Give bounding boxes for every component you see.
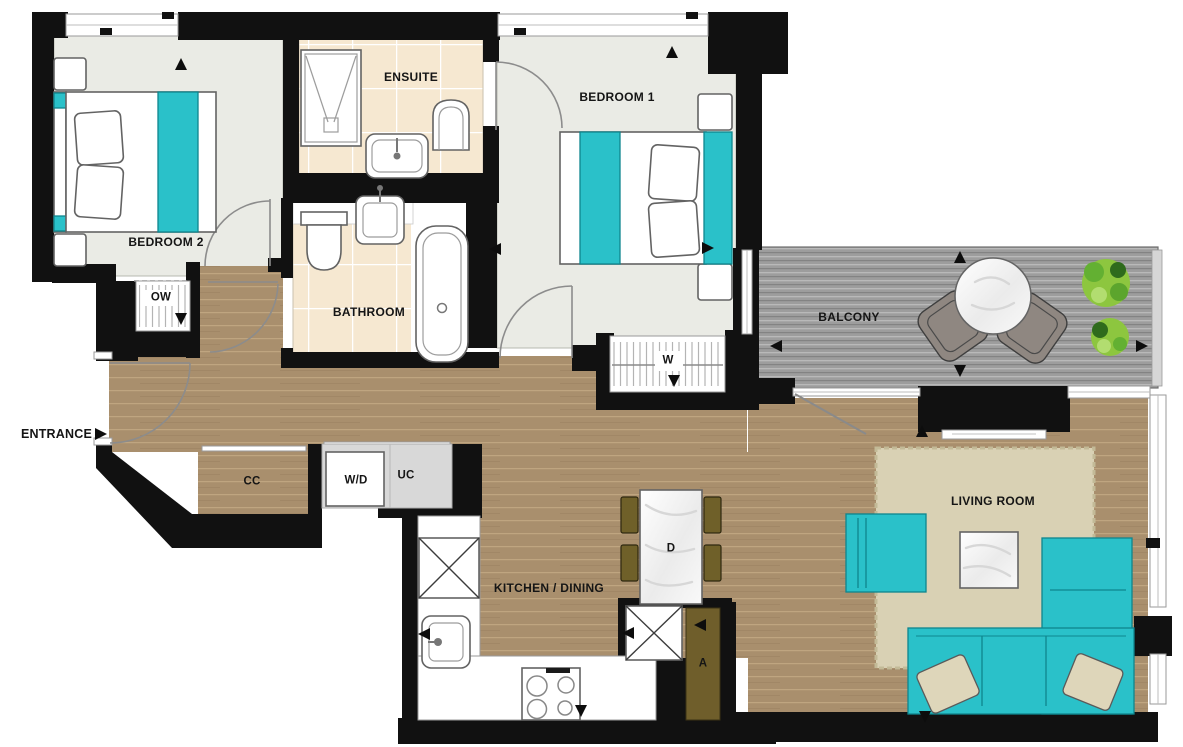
kitchen-tall-unit xyxy=(419,538,479,598)
window xyxy=(498,12,708,36)
hob xyxy=(522,668,580,720)
headboard xyxy=(704,132,732,264)
shower xyxy=(301,50,361,146)
pillow xyxy=(648,144,700,201)
window xyxy=(66,12,178,36)
nightstand xyxy=(698,264,732,300)
living-room-label: LIVING ROOM xyxy=(951,495,1035,507)
bedroom2-label: BEDROOM 2 xyxy=(128,236,203,248)
window xyxy=(1150,654,1166,704)
entrance-label: ENTRANCE xyxy=(20,427,92,441)
utility-cupboard-label: UC xyxy=(397,470,414,482)
nightstand xyxy=(54,58,86,90)
washer-dryer-label: W/D xyxy=(345,475,368,487)
ensuite-sink xyxy=(366,134,428,178)
window xyxy=(1146,395,1166,607)
kitchen-tall-unit xyxy=(626,606,682,660)
dining-chair xyxy=(704,497,721,533)
open-wardrobe xyxy=(136,281,190,331)
dining-chair xyxy=(621,545,638,581)
pillow xyxy=(648,200,700,257)
pillow xyxy=(74,110,124,165)
dining-table-label: D xyxy=(667,543,676,555)
utility-units xyxy=(322,444,452,508)
plant xyxy=(1091,318,1129,356)
ensuite-toilet xyxy=(433,100,469,150)
window xyxy=(742,250,752,334)
bed-runner xyxy=(580,132,620,264)
ensuite-label: ENSUITE xyxy=(384,71,438,83)
floor-plan-drawing xyxy=(0,0,1183,747)
coat-closet-label: CC xyxy=(243,476,260,488)
wardrobe-label: W xyxy=(662,355,673,367)
closet-threshold xyxy=(202,446,306,451)
plant xyxy=(1082,259,1130,307)
access-panel-label: A xyxy=(699,658,708,670)
balcony-label: BALCONY xyxy=(818,311,879,323)
media-unit xyxy=(942,430,1046,439)
bedroom1-label: BEDROOM 1 xyxy=(579,91,654,103)
entrance-jamb xyxy=(94,352,112,359)
bathroom-label: BATHROOM xyxy=(333,306,405,318)
floor-plan: BEDROOM 2 ENSUITE BEDROOM 1 BATHROOM BAL… xyxy=(0,0,1183,747)
bed-runner xyxy=(158,92,198,232)
kitchen-sink xyxy=(422,616,470,668)
dining-chair xyxy=(704,545,721,581)
pillow xyxy=(74,164,124,219)
balcony-table xyxy=(955,258,1031,334)
coffee-table xyxy=(960,532,1018,588)
armchair xyxy=(846,514,926,592)
open-wardrobe-label: OW xyxy=(151,292,171,304)
window xyxy=(1068,386,1150,398)
dining-chair xyxy=(621,497,638,533)
nightstand xyxy=(54,234,86,266)
bathtub xyxy=(416,226,468,362)
balcony-rail xyxy=(1152,250,1162,386)
nightstand xyxy=(698,94,732,130)
kitchen-dining-label: KITCHEN / DINING xyxy=(494,582,604,594)
